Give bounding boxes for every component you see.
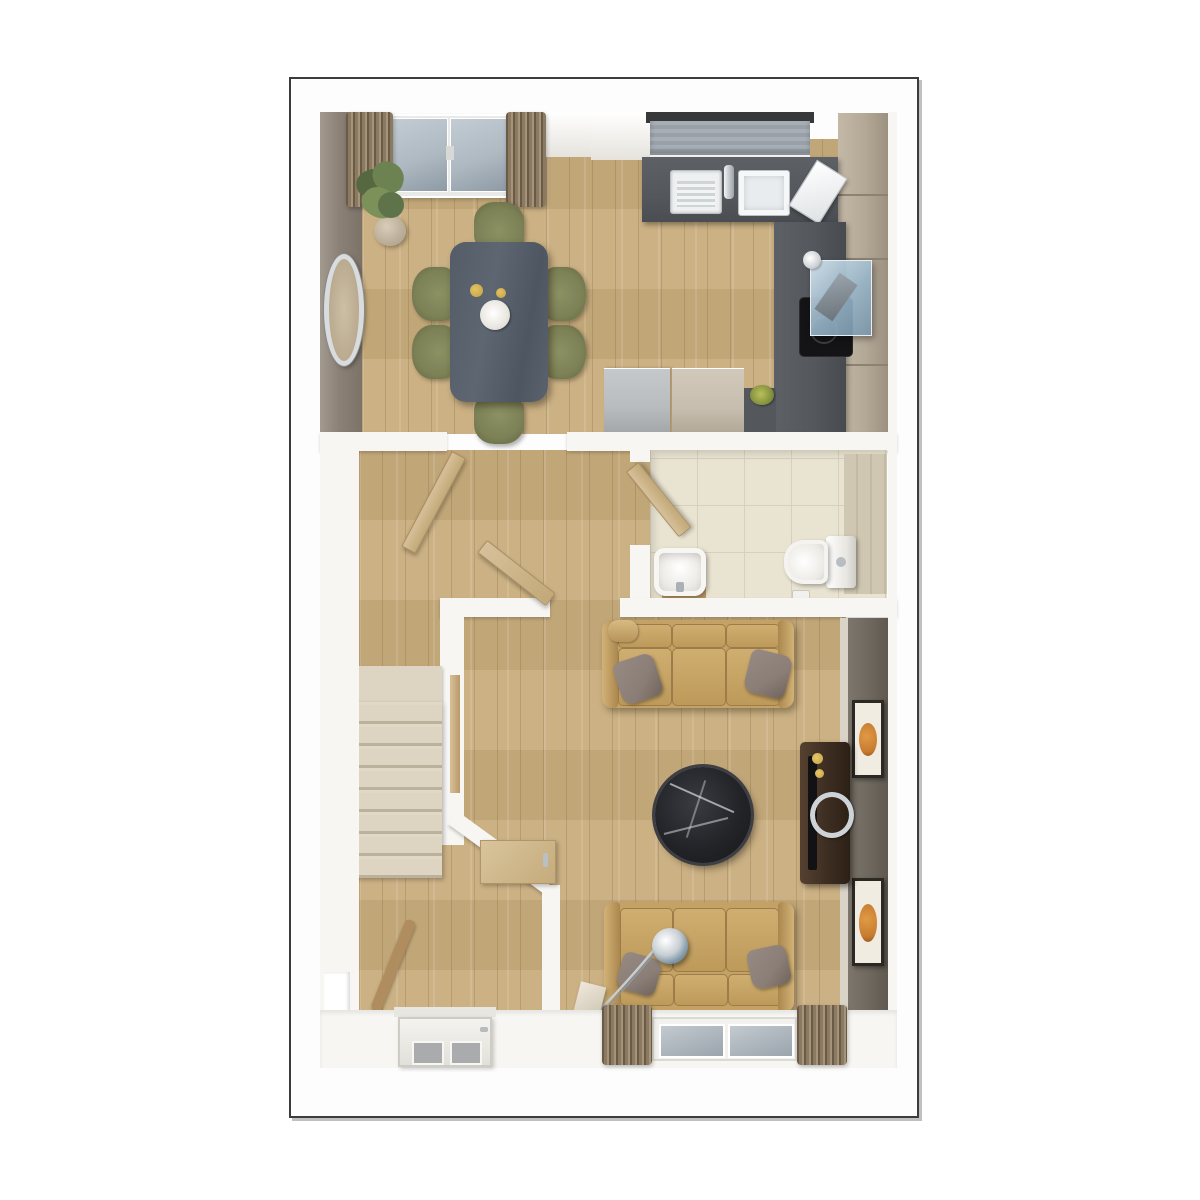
green-bowl	[750, 385, 774, 405]
gold-ornament	[815, 769, 824, 778]
toilet-cistern	[826, 536, 856, 588]
living-curtain-right	[797, 1005, 847, 1065]
floorplan-render	[291, 79, 917, 1116]
window-casement	[659, 1024, 725, 1058]
throw-pillow	[745, 943, 792, 990]
toilet-bowl	[784, 540, 828, 584]
wall-art-top	[852, 700, 884, 778]
arc-lamp-shade	[652, 928, 688, 964]
drainer-ribs	[677, 181, 715, 207]
french-door-glass-right	[450, 118, 508, 192]
basin-tap	[676, 582, 684, 592]
kitchen-tap	[724, 165, 734, 199]
gold-cup	[496, 288, 506, 298]
cupboard-handle	[543, 853, 548, 867]
dining-chair-right-2	[542, 325, 586, 379]
dining-curtain-right	[506, 112, 546, 207]
window-casement	[728, 1024, 794, 1058]
kitchen-base-unit	[672, 368, 744, 434]
living-top-wall-left	[440, 598, 550, 617]
sink-basin	[738, 170, 790, 216]
extractor-hood-glass	[810, 260, 872, 336]
sofa-back-cushion	[726, 624, 780, 648]
throw-blanket-roll	[608, 620, 638, 642]
kitchen-window-blind	[650, 121, 810, 155]
cabinet-seam	[838, 194, 888, 196]
living-top-wall-right	[620, 598, 897, 617]
extractor-light	[803, 251, 821, 269]
wc-left-wall-upper	[630, 432, 650, 462]
art-mat	[855, 881, 881, 963]
art-image	[859, 723, 877, 756]
plate	[480, 300, 510, 330]
oval-wall-mirror	[324, 254, 364, 366]
art-image	[859, 904, 877, 942]
living-curtain-left	[602, 1005, 652, 1065]
dining-chair-bottom	[474, 396, 524, 444]
wc-left-wall-lower	[630, 545, 650, 600]
french-door-handle	[446, 146, 454, 160]
plant-leaf	[378, 192, 404, 218]
under-stairs-door-edge	[450, 675, 460, 793]
living-window	[652, 1017, 797, 1061]
media-unit	[800, 742, 850, 884]
kitchen-appliance-gray	[604, 368, 670, 434]
art-mat	[855, 703, 881, 775]
stair-treads	[350, 702, 442, 878]
sofa-seat-cushion	[672, 648, 726, 706]
floorplan-frame	[289, 77, 919, 1118]
front-door	[398, 1017, 492, 1067]
marble-vein	[664, 817, 729, 835]
door-glass-pane	[450, 1041, 482, 1065]
sink-drainer	[670, 170, 722, 214]
hall-top-wall-right	[567, 432, 897, 451]
sofa-back-cushion	[672, 624, 726, 648]
under-stairs-cupboard-door	[480, 840, 556, 884]
wall-art-bottom	[852, 878, 884, 966]
dining-table	[450, 242, 548, 402]
gold-ornament	[812, 753, 823, 764]
extractor-chimney	[814, 273, 857, 322]
flush-button	[836, 557, 846, 567]
door-glass-pane	[412, 1041, 444, 1065]
coffee-table	[655, 767, 751, 863]
wc-basin	[654, 548, 706, 596]
front-door-frame	[394, 1007, 496, 1017]
dining-chair-right-1	[542, 267, 586, 321]
marble-vein	[686, 780, 706, 838]
hall-living-wall-lower	[542, 885, 560, 1010]
potted-plant	[352, 162, 408, 228]
right-exterior-wall	[888, 112, 897, 1068]
chrome-ring-decor	[810, 792, 854, 838]
door-handle	[480, 1027, 488, 1032]
gold-cup	[470, 284, 483, 297]
stair-landing	[350, 666, 442, 702]
